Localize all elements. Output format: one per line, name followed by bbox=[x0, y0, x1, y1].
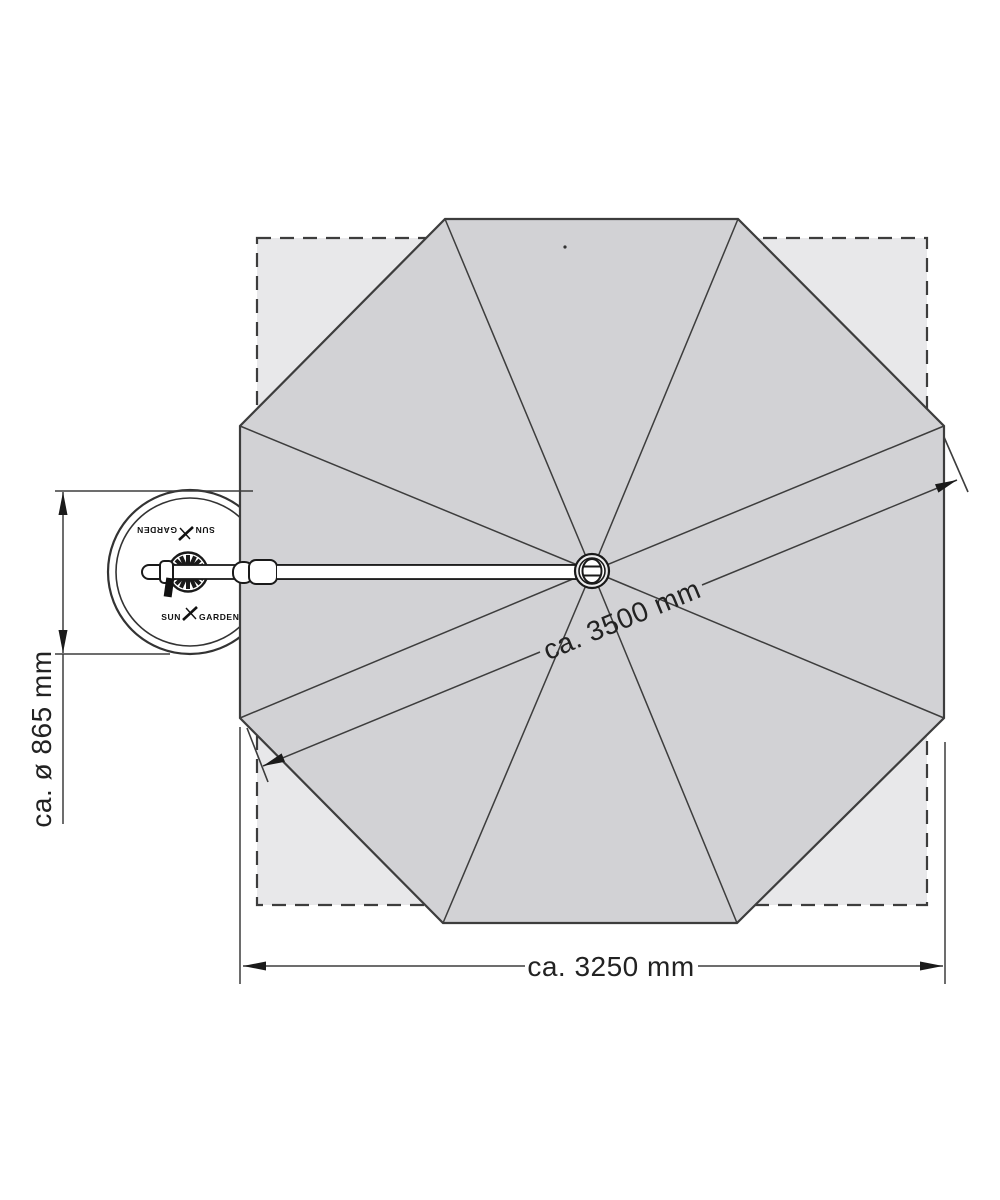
hub-cap bbox=[583, 559, 602, 583]
arrowhead bbox=[920, 962, 943, 971]
brand-word-sun: SUN bbox=[161, 612, 181, 622]
parasol-top-view-drawing: ca. 3500 mm SUN GARDEN SUN bbox=[0, 0, 1000, 1200]
brand-word-garden: GARDEN bbox=[199, 612, 239, 622]
arrowhead bbox=[243, 962, 266, 971]
center-hub bbox=[575, 554, 609, 588]
arrowhead bbox=[59, 492, 68, 515]
drawing-canvas: ca. 3500 mm SUN GARDEN SUN bbox=[0, 0, 1000, 1200]
apex-mark bbox=[563, 245, 566, 248]
brand-word-sun: SUN bbox=[195, 525, 215, 535]
joint-collar bbox=[249, 560, 277, 584]
brand-word-garden: GARDEN bbox=[137, 525, 177, 535]
arrowhead bbox=[59, 630, 68, 653]
pole-shaft-fill bbox=[277, 565, 580, 579]
dimension-base-label: ca. ø 865 mm bbox=[26, 650, 57, 827]
dimension-width-label: ca. 3250 mm bbox=[527, 951, 694, 982]
